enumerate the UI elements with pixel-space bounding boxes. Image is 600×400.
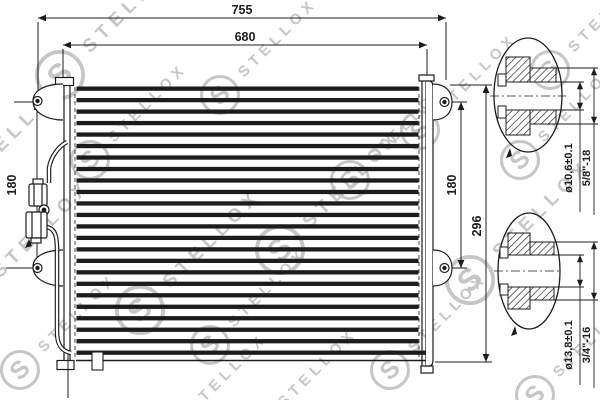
- mounting-tab-bottom-right: [433, 250, 452, 286]
- detail-b-thread-label: 3/4"-16: [581, 327, 593, 363]
- core-tube: [77, 201, 419, 205]
- detail-b-pointer-arrow-icon: [511, 326, 517, 336]
- core-tube: [77, 87, 419, 91]
- core-tube: [77, 224, 419, 228]
- core-tube: [77, 121, 419, 125]
- core-tube: [77, 259, 419, 263]
- dimension-overall-height-label: 296: [470, 216, 484, 237]
- core-tube: [77, 328, 419, 332]
- detail-a-thread-label: 5/8"-18: [581, 150, 593, 186]
- condenser-body: [25, 75, 452, 398]
- core-tube: [77, 282, 419, 286]
- core-tube: [77, 351, 431, 355]
- condenser-drawing: 755 680 180 180 296: [0, 0, 600, 400]
- core-tube: [77, 178, 419, 182]
- inlet-fitting-upper: [29, 179, 47, 206]
- condenser-core-tubes: [77, 87, 431, 355]
- detail-view-a: ø10,6±0.1 5/8"-18: [490, 38, 598, 215]
- core-tube: [77, 190, 419, 194]
- detail-b-dimension-lines: [554, 242, 598, 388]
- detail-a-pointer-arrow-icon: [506, 148, 512, 158]
- dimension-core-width: [63, 45, 427, 83]
- core-tube: [77, 144, 419, 148]
- detail-a-bore-label: ø10,6±0.1: [563, 143, 575, 192]
- dimension-left-span-label: 180: [5, 175, 19, 196]
- core-tube: [77, 316, 419, 320]
- core-tube: [77, 109, 419, 113]
- refrigerant-pipe-lower: [47, 227, 71, 353]
- mounting-tab-top-right: [433, 84, 452, 120]
- core-tube: [77, 270, 419, 274]
- core-tube: [77, 98, 419, 102]
- core-tube: [77, 339, 419, 343]
- core-tube: [77, 132, 419, 136]
- technical-drawing-page: SSTELLOXSSTELLOXSSTELLOXSSTELLOXSSTELLOX…: [0, 0, 600, 400]
- core-tube: [77, 293, 419, 297]
- dimension-core-width-label: 680: [235, 30, 256, 44]
- detail-view-b: ø13,8±0.1 3/4"-16: [494, 213, 598, 388]
- bottom-left-foot: [92, 352, 103, 370]
- core-tube: [77, 213, 419, 217]
- core-tube: [77, 167, 419, 171]
- core-tube: [77, 247, 419, 251]
- dimension-right-span-label: 180: [445, 175, 459, 196]
- core-tube: [77, 305, 419, 309]
- core-tube: [77, 155, 419, 159]
- detail-b-bore-label: ø13,8±0.1: [563, 320, 575, 369]
- outlet-fitting-lower: [26, 212, 47, 243]
- right-header-tank: [419, 75, 434, 373]
- core-tube: [77, 236, 419, 240]
- dimension-overall-width-label: 755: [232, 3, 253, 17]
